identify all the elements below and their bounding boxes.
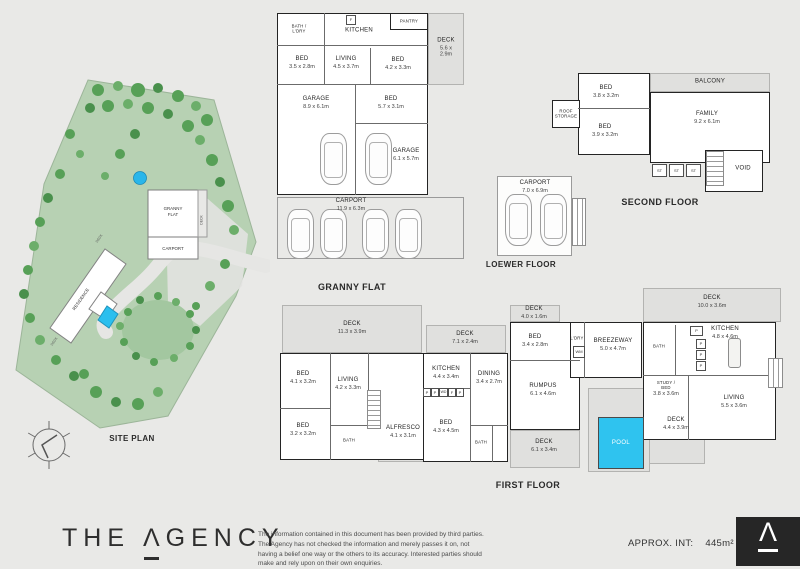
site-granny-label-1: GRANNY: [164, 206, 183, 211]
lambda-icon: Λ: [759, 517, 777, 548]
room-label: BATH: [653, 343, 665, 348]
granny-flat-plan: F BATH / L'DRY KITCHEN PANTRY DECK5.6 x …: [276, 10, 466, 310]
room-label: DECK11.3 x 3.9m: [338, 321, 366, 335]
site-carport-label: CARPORT: [162, 246, 184, 251]
room-label: GARAGE8.9 x 6.1m: [303, 96, 330, 110]
room-label: KITCHEN4.4 x 3.4m: [432, 366, 460, 380]
room-label: PANTRY: [400, 18, 418, 23]
approx-internal-area: APPROX. INT:445m²: [628, 538, 734, 549]
site-caption: SITE PLAN: [109, 434, 154, 443]
approx-label: APPROX. INT:: [628, 538, 693, 549]
pool: POOL: [598, 417, 644, 469]
car: [540, 194, 567, 246]
room-label: ROOF STORAGE: [555, 109, 577, 120]
room-label: BED4.1 x 3.2m: [290, 371, 316, 385]
car: [320, 133, 347, 185]
site-deck-label: DECK: [200, 215, 204, 225]
appliance-box: P: [456, 388, 464, 397]
agency-logo-mark: Λ: [736, 517, 800, 566]
room-label: BED3.9 x 3.2m: [592, 124, 618, 138]
first-floor-plan: P P WD F P P P P P WM POOL DECK11.3 x 3.…: [276, 288, 796, 488]
first-caption: FIRST FLOOR: [496, 480, 560, 490]
lower-floor-plan: CARPORT7.0 x 6.9m LOEWER FLOOR: [492, 170, 592, 275]
room-label: FAMILY9.2 x 6.1m: [694, 111, 720, 125]
room-label: BREEZEWAY5.0 x 4.7m: [594, 338, 633, 352]
room-label: L'DRY: [570, 335, 583, 340]
brand-lambda: Λ: [143, 524, 166, 553]
room-label: DECK6.1 x 3.4m: [531, 439, 557, 453]
appliance-box: WD: [439, 388, 448, 397]
car: [395, 209, 422, 259]
disclaimer-text: The information contained in this docume…: [258, 530, 484, 569]
room-label: KITCHEN4.8 x 4.6m: [711, 326, 739, 340]
stairs: [706, 151, 724, 186]
room-label: BATH: [475, 439, 487, 444]
site-plan: GRANNY FLAT CARPORT DECK RESIDENCE DECK …: [0, 74, 270, 436]
room-label: BED3.4 x 2.8m: [522, 334, 548, 348]
room-label: ALFRESCO4.1 x 3.1m: [386, 425, 420, 439]
room-label: LIVING4.2 x 3.3m: [335, 377, 361, 391]
brand-logo: THE ΛGENCY: [62, 524, 285, 553]
room-label: CARPORT7.0 x 6.9m: [520, 180, 551, 194]
logo-underline: [758, 549, 778, 552]
appliance-box: P: [431, 388, 439, 397]
washing-machine-box: WM: [573, 346, 585, 358]
room-label: LIVING4.5 x 3.7m: [333, 56, 359, 70]
site-garden-oval: [122, 300, 194, 360]
brand-part1: THE: [62, 524, 130, 552]
room-label: DINING3.4 x 2.7m: [476, 371, 502, 385]
room-label: GARAGE6.1 x 5.7m: [393, 148, 420, 162]
room-label: KITCHEN: [345, 27, 373, 35]
room-label: RUMPUS6.1 x 4.6m: [529, 383, 556, 397]
room-label: BED4.2 x 3.3m: [385, 57, 411, 71]
granny-building: [277, 13, 428, 195]
room-label: BED3.2 x 3.2m: [290, 423, 316, 437]
storage-box: ST: [686, 164, 701, 177]
room-label: DECK4.4 x 3.9m: [663, 417, 689, 431]
first-left-wing: [280, 353, 426, 460]
stairs: [768, 358, 783, 388]
appliance-box: P: [423, 388, 431, 397]
room-label: DECK10.0 x 3.6m: [698, 295, 727, 309]
kitchen-island: [728, 338, 741, 368]
stairs: [367, 390, 381, 429]
room-label: BATH: [343, 437, 355, 442]
car: [505, 194, 532, 246]
pantry-box: P: [696, 339, 706, 349]
room-label: DECK4.0 x 1.6m: [521, 306, 547, 320]
room-label: BED3.8 x 3.2m: [593, 85, 619, 99]
car: [320, 209, 347, 259]
car: [362, 209, 389, 259]
room-label: STUDY / BED3.8 x 3.6m: [653, 380, 679, 398]
room-label: BATH / L'DRY: [292, 24, 307, 35]
fridge-box: F: [346, 15, 356, 25]
stairs: [572, 198, 586, 246]
room-label: BED4.3 x 4.5m: [433, 420, 459, 434]
car: [365, 133, 392, 185]
room-label: BED3.5 x 2.8m: [289, 56, 315, 70]
pantry-box: P: [696, 361, 706, 371]
room-label: BED5.7 x 3.1m: [378, 96, 404, 110]
room-label: DECK5.6 x 2.9m: [436, 37, 456, 58]
lower-caption: LOEWER FLOOR: [486, 260, 556, 269]
room-label: BALCONY: [695, 78, 725, 86]
approx-value: 445m²: [705, 538, 733, 549]
car: [287, 209, 314, 259]
site-granny-label-2: FLAT: [168, 212, 179, 217]
site-granny-deck: [198, 190, 207, 237]
appliance-box: F: [448, 388, 456, 397]
room-label: VOID: [735, 165, 750, 173]
pantry-box: P: [696, 350, 706, 360]
storage-box: ST: [669, 164, 684, 177]
site-water-tank: [134, 172, 147, 185]
room-label: DECK7.1 x 2.4m: [452, 331, 478, 345]
second-caption: SECOND FLOOR: [621, 197, 698, 207]
compass-icon: [20, 416, 78, 474]
room-label: CARPORT11.9 x 6.3m: [336, 198, 367, 212]
storage-box: ST: [652, 164, 667, 177]
room-label: LIVING5.5 x 3.6m: [721, 395, 747, 409]
pantry-box: P: [690, 326, 703, 336]
